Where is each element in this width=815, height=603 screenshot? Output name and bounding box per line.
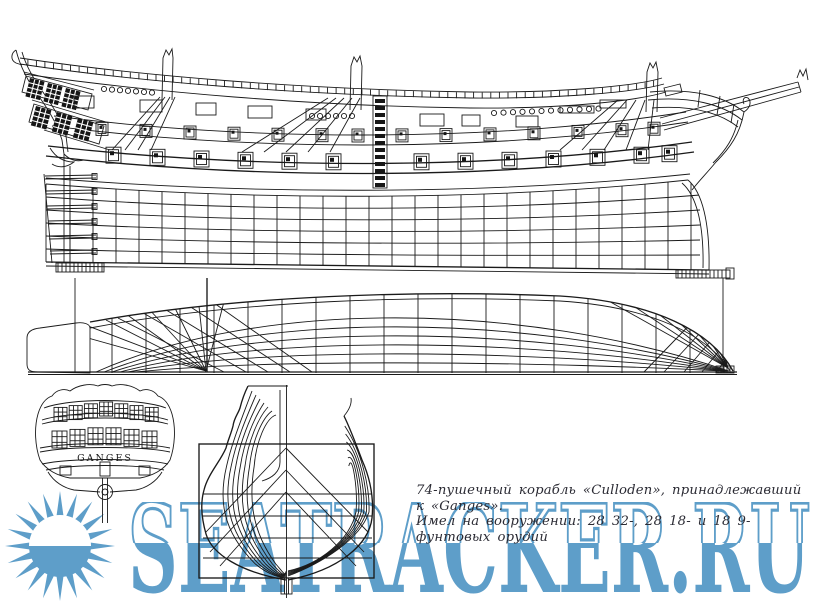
section-curves [223, 391, 369, 578]
keel-hatching [56, 263, 734, 279]
caption-line-1: 74-пушечный корабль «Culloden», принадле… [416, 483, 814, 514]
waterlines-and-stations [70, 288, 730, 373]
stern-windows [52, 402, 158, 448]
caption: 74-пушечный корабль «Culloden», принадле… [416, 483, 814, 545]
blueprint-page: SEATRACKER.RU SEATRACKER.RU [0, 0, 815, 603]
quarter-gallery [22, 72, 110, 167]
stern-view: GANGES [36, 385, 175, 524]
rail-stanchions [28, 60, 654, 99]
bow-head [648, 69, 808, 190]
main-channel [373, 96, 387, 188]
sheer-plan [12, 49, 808, 372]
lower-gunport-row [106, 146, 677, 170]
mast-stubs [162, 49, 658, 112]
caption-line-2: Имел на вооружении: 28 32-, 28 18- и 18 … [416, 514, 814, 545]
body-plan [199, 385, 374, 598]
half-breadth-plan [27, 288, 737, 375]
